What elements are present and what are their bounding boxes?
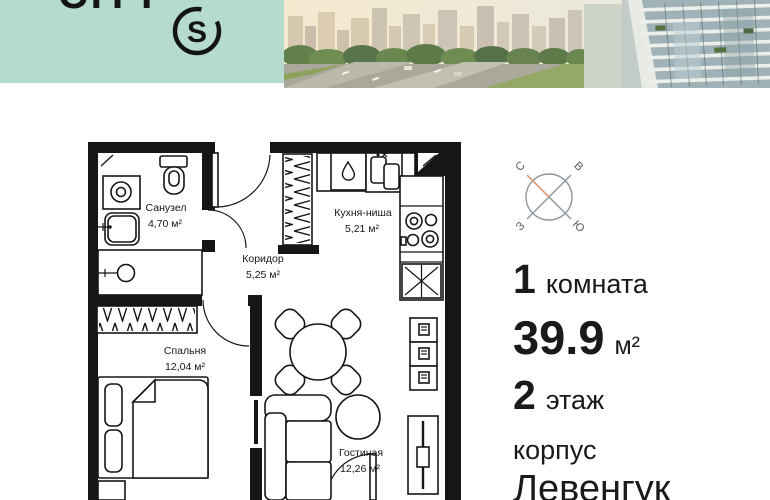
s-circle-logo-icon: S: [170, 4, 224, 58]
room-label-kitchen: Кухня-ниша: [334, 207, 392, 219]
area-row: 39.9 м²: [513, 310, 640, 365]
room-label-living: Гостиная: [339, 447, 383, 459]
compass-south-label: Ю: [570, 218, 587, 235]
foreground-tower: [584, 0, 770, 88]
header: CITY S: [0, 0, 770, 88]
building-name: Левенгук: [513, 467, 670, 500]
rooms-count-label: комната: [546, 269, 648, 300]
room-area-corridor: 5,25 м²: [246, 269, 281, 281]
rooms-count-row: 1 комната: [513, 256, 648, 303]
building-block: корпус Левенгук: [513, 436, 670, 500]
svg-text:S: S: [187, 16, 207, 49]
building-label: корпус: [513, 436, 670, 466]
floor-plan: Санузел 4,70 м² Коридор 5,25 м² Кухня-ни…: [85, 140, 465, 500]
compass-west-label: З: [514, 220, 527, 233]
room-area-bathroom: 4,70 м²: [148, 218, 183, 230]
city-photo: [284, 0, 770, 88]
floor-label: этаж: [546, 385, 604, 416]
brand-text: CITY: [58, 0, 163, 18]
roads: [284, 62, 624, 88]
area-unit: м²: [614, 332, 640, 361]
room-area-kitchen: 5,21 м²: [345, 223, 380, 235]
bedroom-furniture: [98, 377, 208, 500]
room-label-bedroom: Спальня: [164, 345, 206, 357]
compass-north-label: С: [514, 160, 528, 174]
floor-value: 2: [513, 372, 536, 419]
listing-card: CITY S: [0, 0, 770, 500]
brand-block: CITY S: [0, 0, 284, 83]
room-label-corridor: Коридор: [242, 253, 284, 265]
room-area-living: 12,26 м²: [340, 463, 380, 475]
compass-east-label: В: [571, 160, 585, 174]
floor-row: 2 этаж: [513, 372, 604, 419]
area-value: 39.9: [513, 310, 604, 365]
room-label-bathroom: Санузел: [146, 202, 187, 214]
compass-north-line: [527, 175, 549, 197]
rooms-count-value: 1: [513, 256, 536, 303]
compass-rose-icon: С В З Ю: [498, 146, 602, 250]
room-area-bedroom: 12,04 м²: [165, 361, 205, 373]
